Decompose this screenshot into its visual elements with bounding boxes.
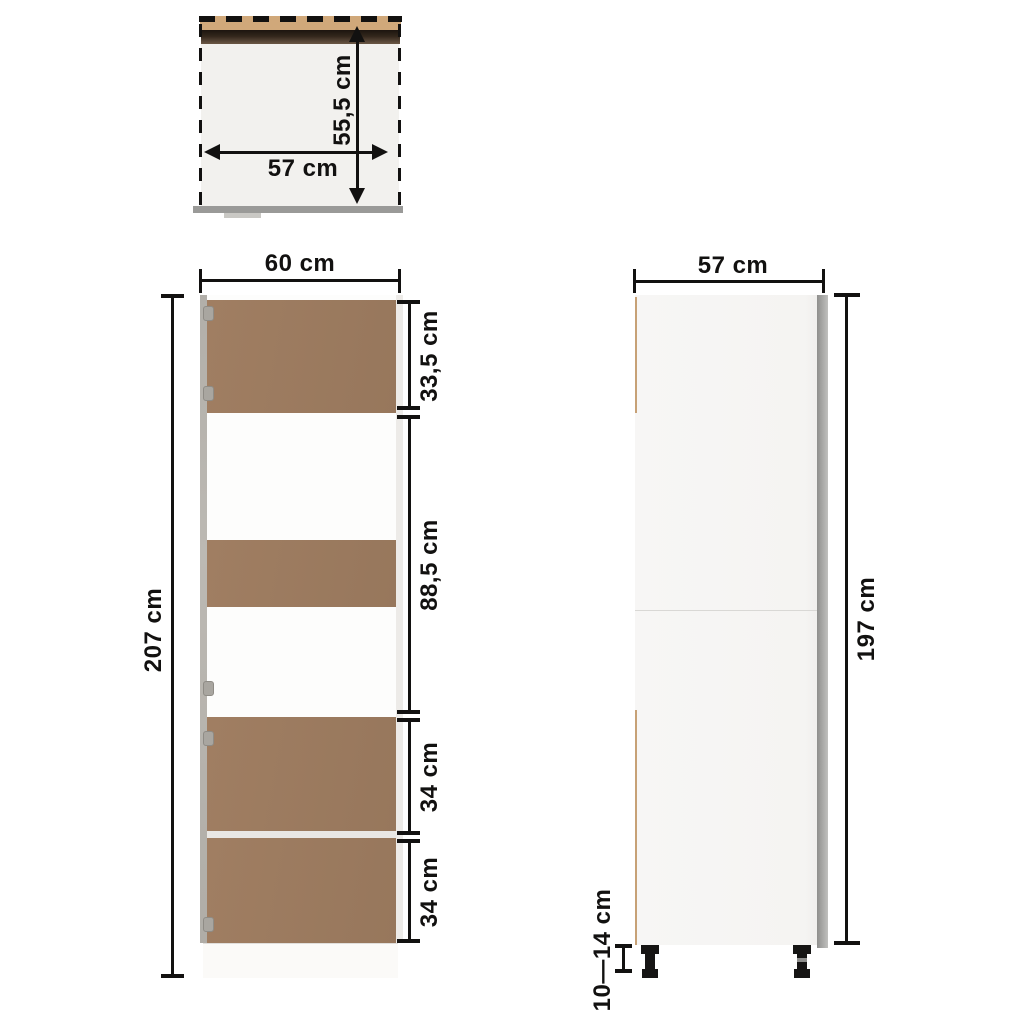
side-view-height-tick-bottom [834,941,860,945]
foot-adjuster-band [797,958,807,962]
side-view: 57 cm 197 cm 10—14 cm [0,0,504,784]
side-view-width-tick-right [822,269,825,293]
front-view-plinth [203,943,398,978]
side-view-feet-dimension-label: 10—14 cm [590,885,616,1015]
side-view-width-dimension-label: 57 cm [688,253,778,279]
side-view-feet-tick-top [615,944,632,948]
foot-icon [641,945,659,954]
side-view-door-edge-upper [635,297,637,413]
foot-icon [645,954,655,969]
front-view-door-gap [207,831,396,838]
side-view-height-tick-top [834,293,860,297]
side-view-height-dimension-line [845,295,848,943]
side-view-door-edge-lower [635,710,637,945]
dimension-diagram: 55,5 cm 57 cm 60 cm 207 cm [0,0,1024,1024]
foot-icon [793,945,811,954]
side-view-panel [635,295,828,945]
foot-icon [794,969,810,978]
foot-icon [642,969,658,978]
side-view-panel-seam [635,610,817,611]
side-view-back-edge-strip [817,295,828,948]
front-view-lower-door-2 [207,838,396,943]
front-section-line-4 [408,841,411,943]
side-view-feet-tick-bottom [615,969,632,973]
hinge-icon [203,917,214,932]
side-view-height-dimension-label: 197 cm [853,564,881,674]
front-section-label-lower-door-2: 34 cm [416,837,444,947]
side-view-feet-dimension-line [622,945,625,972]
front-view-height-tick-bottom [161,974,184,978]
side-view-width-tick-left [633,269,636,293]
side-view-width-dimension-line [635,280,825,283]
